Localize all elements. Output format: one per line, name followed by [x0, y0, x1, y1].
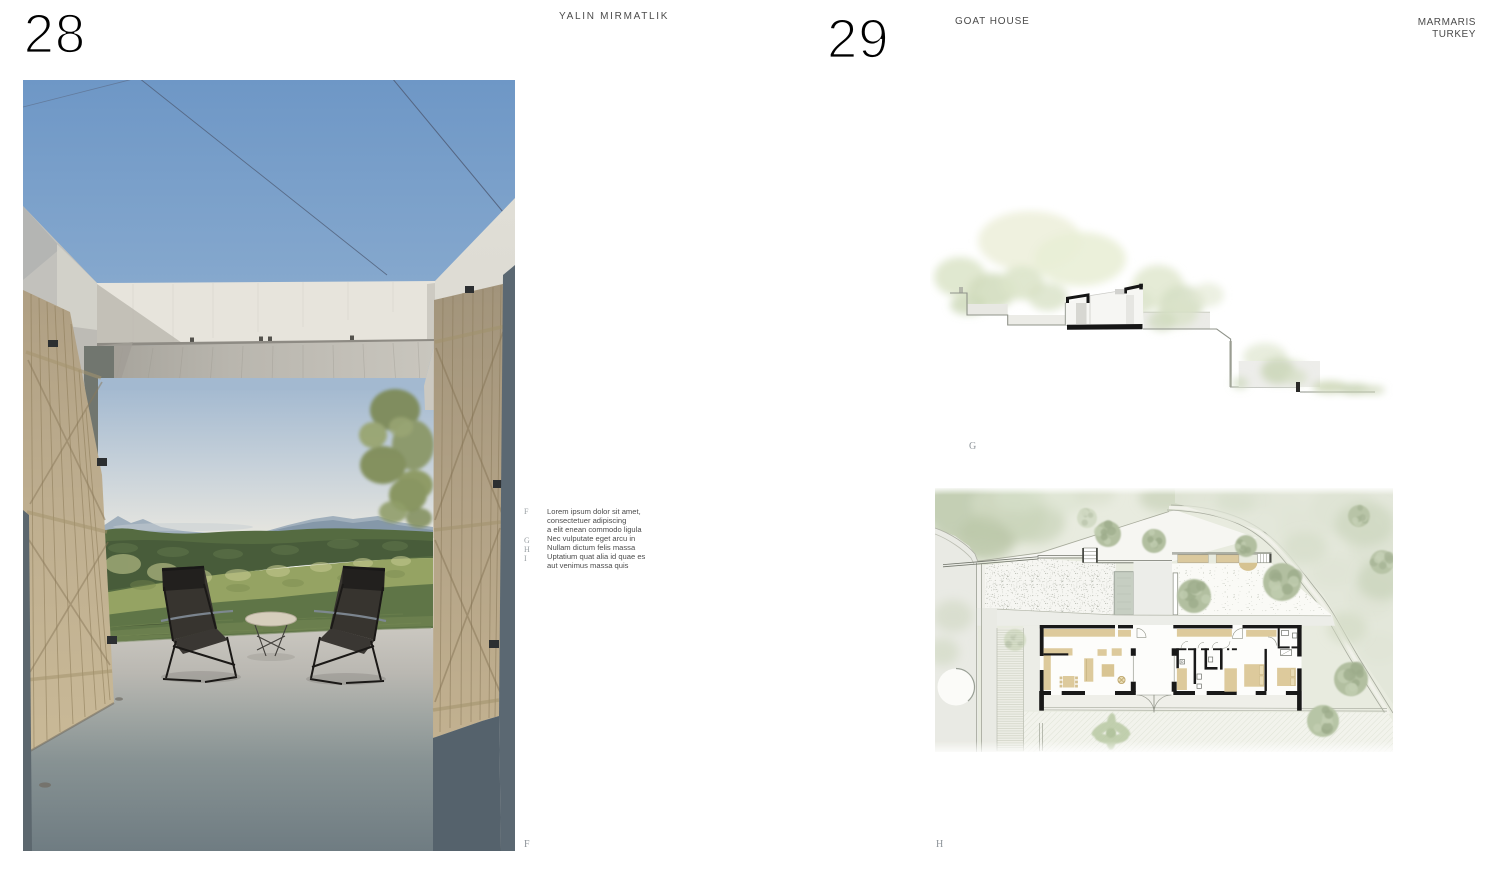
- svg-text:28: 28: [24, 4, 87, 65]
- svg-text:29: 29: [827, 9, 890, 70]
